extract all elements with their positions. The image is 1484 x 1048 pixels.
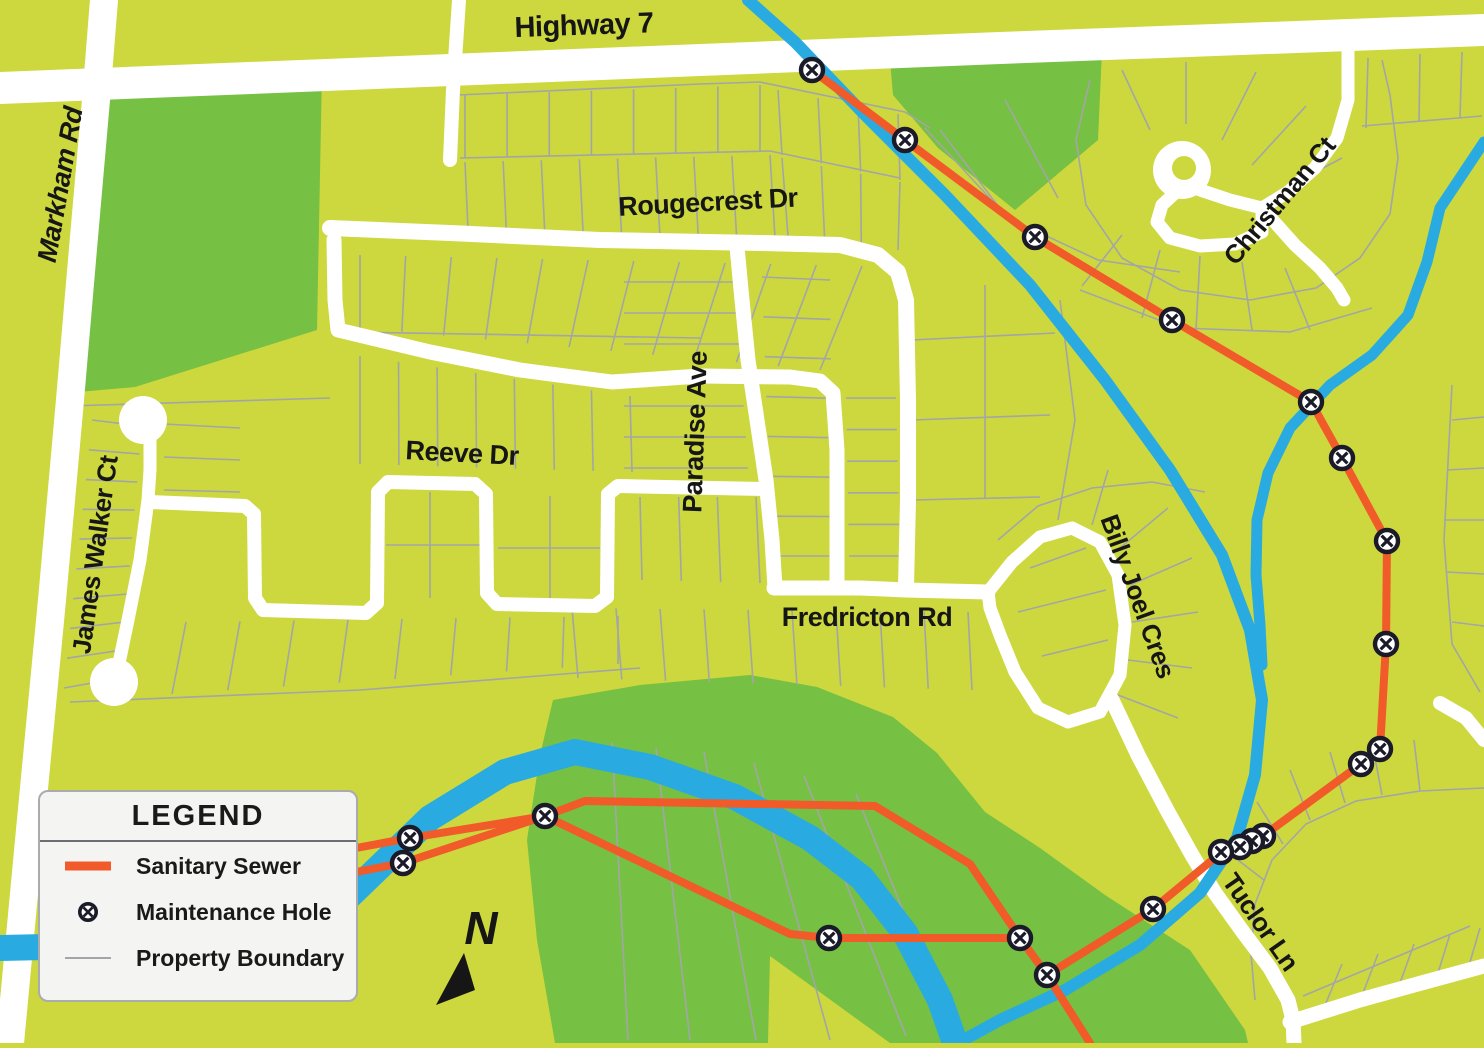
maintenance-hole-icon (1376, 530, 1398, 552)
maintenance-hole-icon (1369, 738, 1391, 760)
christman-court-island (1172, 156, 1196, 180)
maintenance-hole-icon (1036, 964, 1058, 986)
maintenance-hole-icon (1350, 753, 1372, 775)
road-label-reeve-dr: Reeve Dr (405, 435, 520, 471)
road-label-fredricton-rd: Fredricton Rd (782, 602, 953, 632)
maintenance-hole-icon (1375, 633, 1397, 655)
legend-item-sanitary-sewer: Sanitary Sewer (40, 844, 356, 888)
maintenance-hole-icon (1024, 226, 1046, 248)
property-boundary (861, 174, 862, 245)
road-stub-north (450, 0, 459, 160)
legend-label-sanitary-sewer: Sanitary Sewer (136, 853, 301, 880)
maintenance-hole-icon (40, 899, 136, 925)
property-boundary (1419, 54, 1420, 122)
maintenance-hole-icon (1161, 309, 1183, 331)
maintenance-hole-icon (399, 827, 421, 849)
property-boundary (769, 476, 832, 477)
james-walker-north-bulb (119, 396, 167, 444)
maintenance-hole-icon (1009, 927, 1031, 949)
legend-label-property-boundary: Property Boundary (136, 945, 344, 972)
maintenance-hole-icon (1210, 841, 1232, 863)
road-fredricton (774, 588, 988, 592)
road-label-highway-7: Highway 7 (514, 7, 654, 44)
property-boundary-line-icon (40, 954, 136, 962)
north-arrow-letter: N (464, 902, 498, 954)
maintenance-hole-icon (894, 129, 916, 151)
maintenance-hole-icon (1331, 447, 1353, 469)
legend-label-maintenance-hole: Maintenance Hole (136, 899, 332, 926)
maintenance-hole-icon (534, 805, 556, 827)
legend: LEGEND Sanitary Sewer Maintenance Hole P… (38, 790, 358, 1002)
james-walker-south-bulb (90, 658, 138, 706)
legend-item-maintenance-hole: Maintenance Hole (40, 890, 356, 934)
legend-item-property-boundary: Property Boundary (40, 936, 356, 980)
legend-title: LEGEND (40, 792, 356, 840)
sanitary-sewer-line-icon (40, 860, 136, 872)
legend-divider (40, 840, 356, 842)
maintenance-hole-icon (1142, 898, 1164, 920)
maintenance-hole-icon (801, 59, 823, 81)
maintenance-hole-icon (818, 927, 840, 949)
maintenance-hole-icon (1300, 391, 1322, 413)
road-label-paradise-ave: Paradise Ave (677, 350, 713, 513)
maintenance-hole-icon (392, 852, 414, 874)
